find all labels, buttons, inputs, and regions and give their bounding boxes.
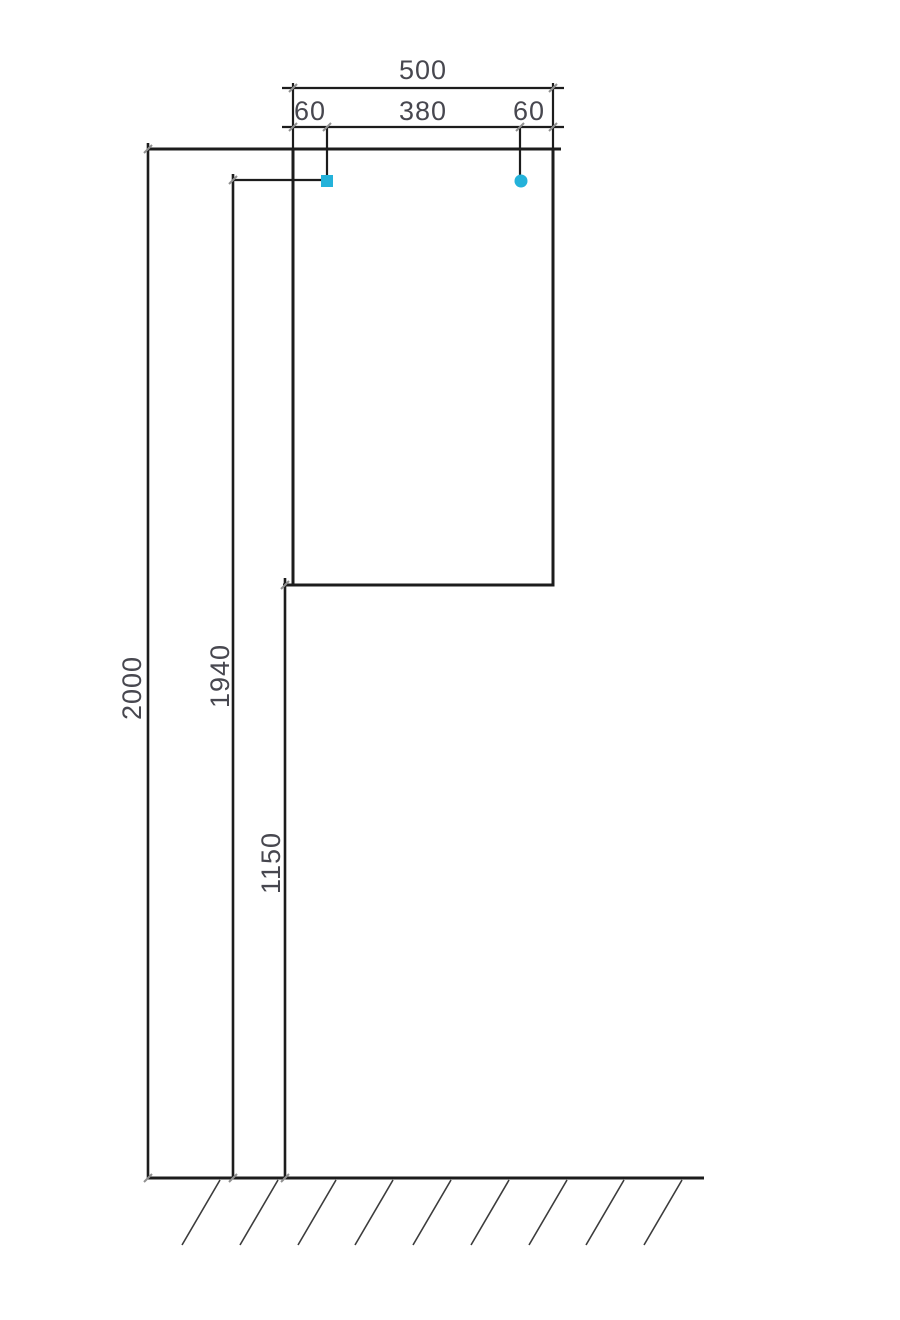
dim-label-1150: 1150 xyxy=(257,813,285,913)
right-mount-point-marker xyxy=(515,175,528,188)
hatch-line xyxy=(240,1180,278,1245)
hatch-line xyxy=(586,1180,624,1245)
cabinet-outline xyxy=(293,149,553,585)
hatch-line xyxy=(182,1180,220,1245)
technical-drawing-canvas: 500 60 380 60 2000 1940 1150 xyxy=(0,0,900,1320)
dim-label-2000: 2000 xyxy=(118,638,146,738)
hatch-line xyxy=(355,1180,393,1245)
left-mount-point-marker xyxy=(321,175,333,187)
dim-label-1940: 1940 xyxy=(206,626,234,726)
dim-label-60-right: 60 xyxy=(504,97,554,125)
hatch-line xyxy=(413,1180,451,1245)
dim-label-500: 500 xyxy=(383,56,463,84)
hatch-line xyxy=(529,1180,567,1245)
floor-hatching xyxy=(182,1180,682,1245)
dim-label-380: 380 xyxy=(383,97,463,125)
hatch-line xyxy=(298,1180,336,1245)
dim-label-60-left: 60 xyxy=(285,97,335,125)
hatch-line xyxy=(471,1180,509,1245)
hatch-line xyxy=(644,1180,682,1245)
